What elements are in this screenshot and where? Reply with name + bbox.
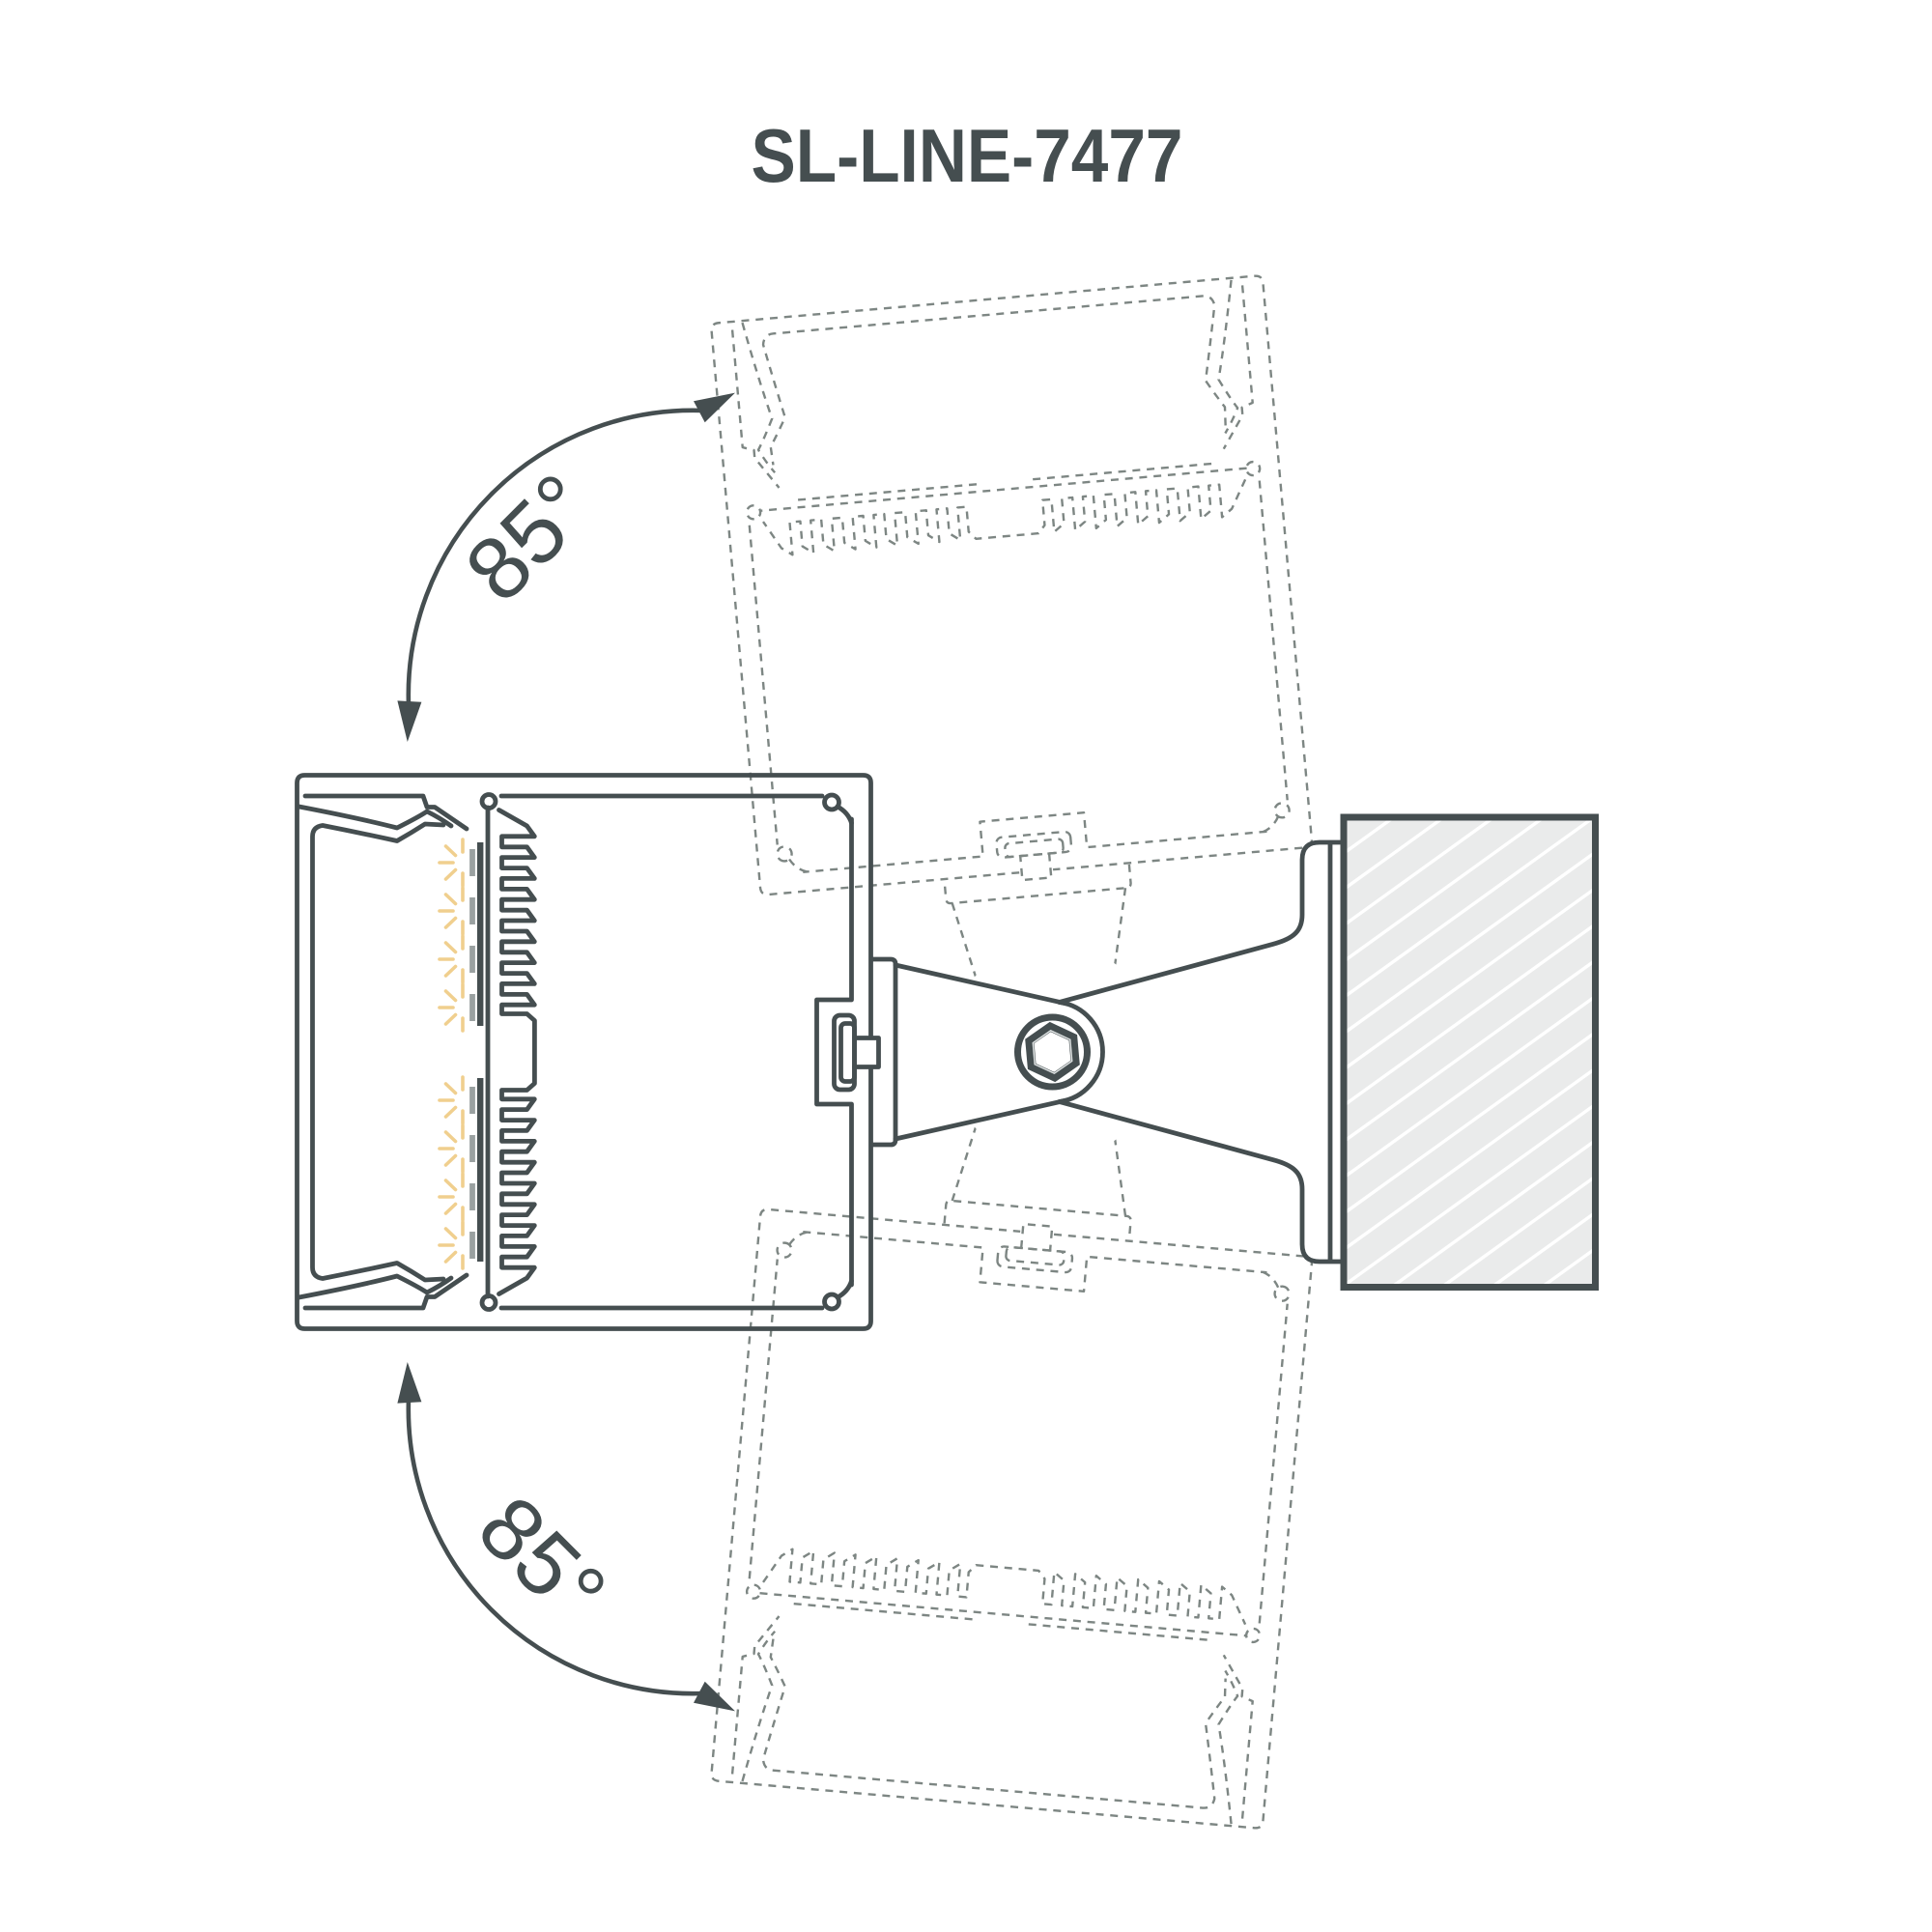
svg-text:SL-LINE-7477: SL-LINE-7477	[752, 113, 1183, 198]
